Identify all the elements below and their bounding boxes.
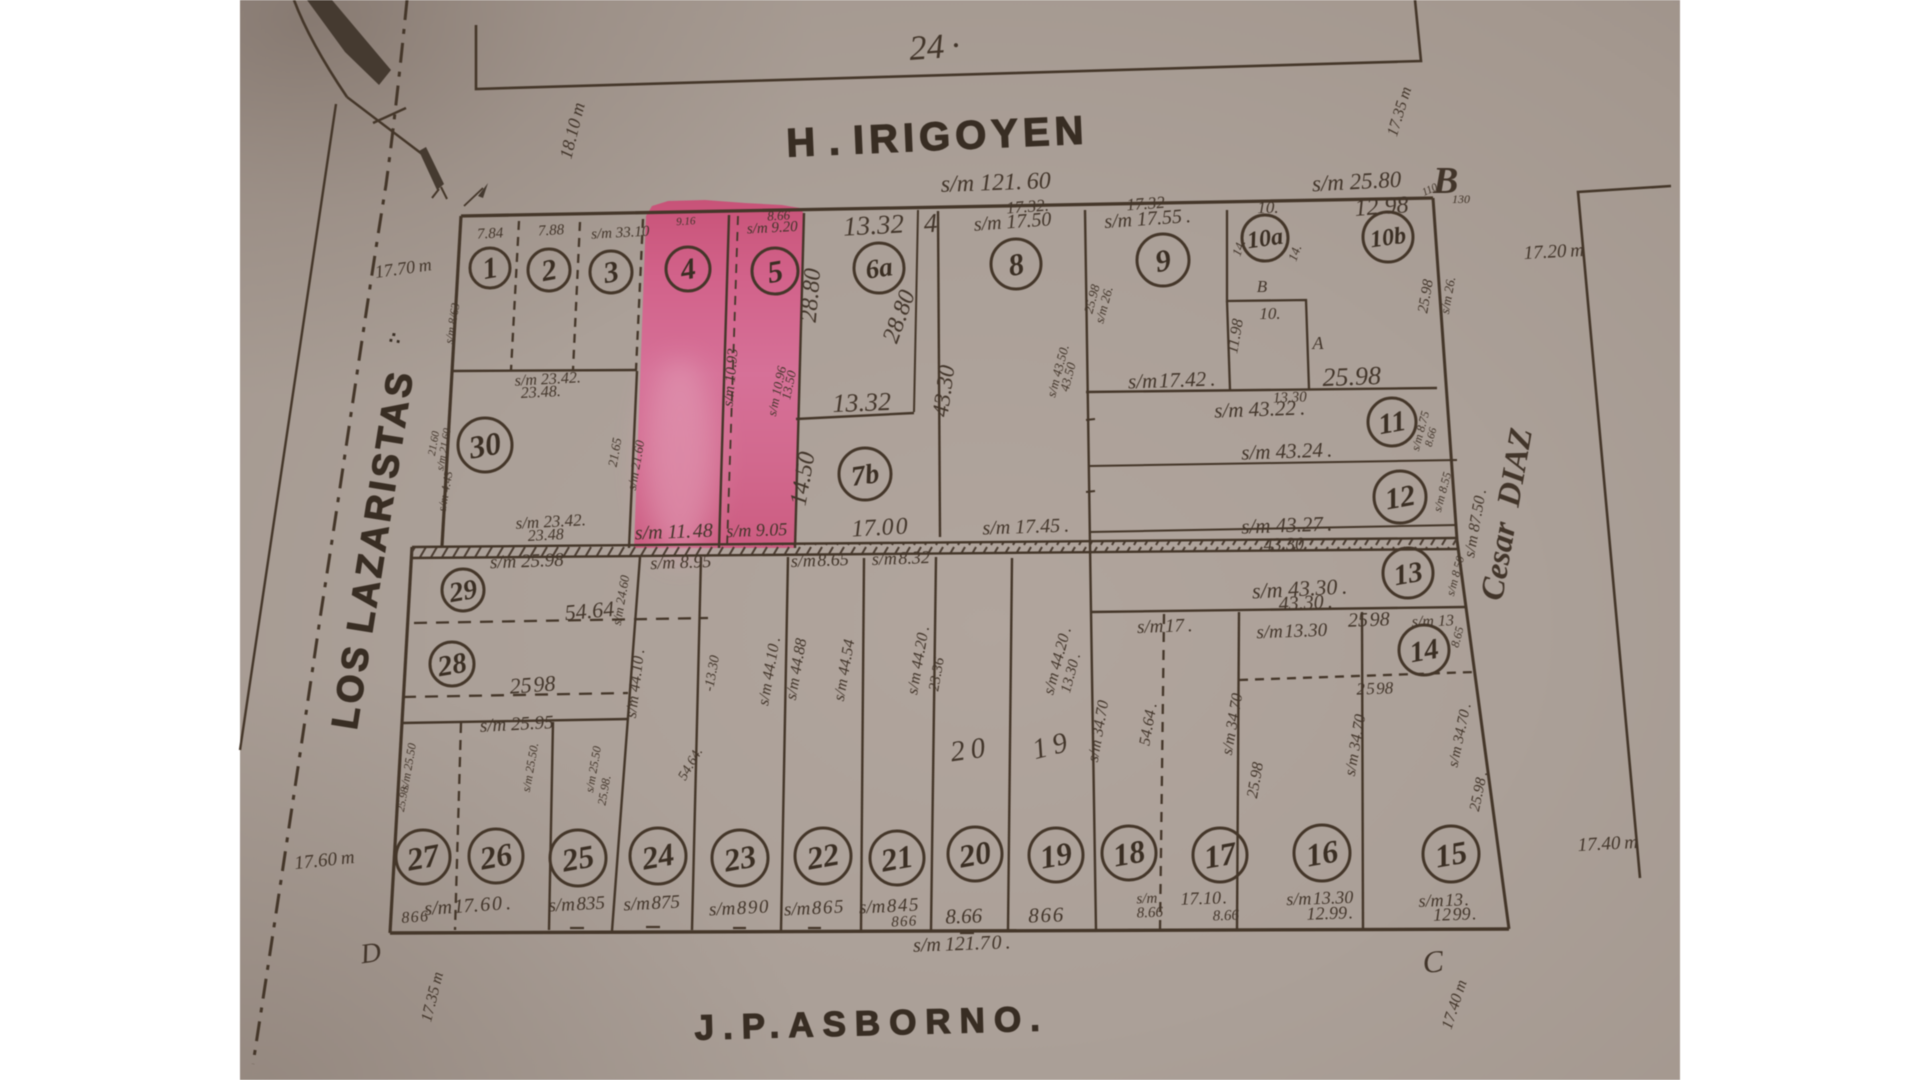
svg-text:13: 13 [1391, 556, 1425, 593]
svg-text:s/m 8 6 5: s/m 8 6 5 [783, 896, 844, 920]
svg-text:s/m 13.30: s/m 13.30 [1256, 620, 1328, 643]
svg-text:24 ·: 24 · [908, 26, 961, 68]
svg-text:8 6 6: 8 6 6 [1028, 902, 1064, 927]
svg-text:A: A [1312, 333, 1325, 353]
svg-text:8.66: 8.66 [945, 903, 983, 928]
svg-text:10b: 10b [1369, 223, 1408, 254]
svg-text:17.20 m: 17.20 m [1523, 240, 1584, 264]
svg-text:s/m 25.95: s/m 25.95 [479, 712, 554, 737]
svg-text:s/m 835: s/m 835 [548, 893, 606, 917]
svg-text:17.0 0: 17.0 0 [851, 514, 908, 543]
svg-text:23: 23 [720, 837, 759, 878]
svg-text:18: 18 [1110, 832, 1148, 873]
svg-text:24: 24 [638, 835, 677, 876]
svg-text:26: 26 [476, 835, 515, 876]
svg-text:s/m 33.10: s/m 33.10 [591, 224, 651, 243]
svg-text:43.30: 43.30 [1263, 533, 1304, 554]
svg-text:s/m 43.22 .: s/m 43.22 . [1214, 395, 1306, 422]
svg-text:22: 22 [803, 835, 842, 876]
svg-text:s/m 17.42 .: s/m 17.42 . [1128, 366, 1216, 393]
svg-text:s/m 875: s/m 875 [623, 892, 681, 916]
svg-text:30: 30 [465, 424, 504, 465]
svg-text:15: 15 [1432, 833, 1470, 874]
svg-text:10.: 10. [1257, 198, 1278, 217]
svg-text:25 98: 25 98 [1348, 608, 1390, 631]
svg-text:2 5 98: 2 5 98 [1356, 678, 1394, 698]
svg-text:12.98: 12.98 [1354, 192, 1410, 222]
svg-text:12.99 .: 12.99 . [1306, 902, 1353, 924]
svg-text:25 98: 25 98 [509, 670, 556, 698]
svg-text:s/m 17.45 .: s/m 17.45 . [982, 514, 1070, 539]
svg-text:s/m 9.20: s/m 9.20 [746, 219, 798, 238]
svg-text:s/m 43.24 .: s/m 43.24 . [1241, 437, 1333, 464]
svg-text:13.32: 13.32 [832, 387, 891, 418]
svg-text:25.98: 25.98 [1322, 361, 1381, 392]
svg-text:14: 14 [1407, 633, 1441, 670]
svg-text:10.: 10. [1259, 304, 1280, 323]
svg-text:23.48: 23.48 [527, 526, 564, 545]
svg-text:s/m 13: s/m 13 [1411, 612, 1454, 630]
svg-text:17.40 m: 17.40 m [1577, 832, 1638, 856]
svg-text:13.32: 13.32 [842, 208, 904, 241]
svg-text:28.80: 28.80 [796, 267, 827, 323]
svg-text:43.30 .: 43.30 . [1278, 591, 1333, 616]
svg-text:23.48.: 23.48. [520, 383, 561, 402]
svg-text:17.10 .: 17.10 . [1180, 887, 1227, 909]
svg-text:21: 21 [877, 837, 916, 878]
svg-text:8.66: 8.66 [1212, 908, 1239, 925]
svg-text:25: 25 [558, 837, 597, 878]
svg-text:s/m 25.98: s/m 25.98 [490, 550, 565, 574]
svg-text:12 99 .: 12 99 . [1433, 903, 1477, 925]
svg-text:12: 12 [1382, 479, 1417, 517]
svg-text:2 0: 2 0 [948, 732, 987, 769]
svg-text:29: 29 [446, 574, 480, 610]
svg-text:130: 130 [1452, 192, 1470, 206]
svg-text:s/m 17 .: s/m 17 . [1137, 615, 1193, 638]
svg-text:10a: 10a [1246, 224, 1285, 255]
svg-text:54.64: 54.64 [564, 596, 615, 625]
svg-text:28: 28 [434, 647, 470, 684]
svg-text:7.84: 7.84 [477, 225, 505, 242]
svg-text:s/m 8.65: s/m 8.65 [790, 549, 849, 571]
svg-text:s/m 8.95: s/m 8.95 [650, 551, 712, 573]
svg-text:16: 16 [1303, 832, 1341, 873]
svg-text:s/m 8.32: s/m 8.32 [871, 547, 930, 569]
svg-text:7b: 7b [849, 458, 881, 493]
svg-text:C: C [1421, 943, 1446, 980]
svg-text:B: B [1257, 277, 1268, 296]
svg-text:s/m 25.80: s/m 25.80 [1311, 167, 1402, 197]
svg-text:s/m 9.05: s/m 9.05 [726, 519, 788, 541]
svg-text:20: 20 [955, 833, 994, 874]
svg-text:D: D [358, 937, 383, 971]
svg-text:11: 11 [1376, 405, 1409, 441]
svg-text:7.88: 7.88 [538, 222, 566, 239]
svg-text:6a: 6a [864, 251, 895, 284]
svg-text:8.66: 8.66 [1136, 905, 1163, 922]
svg-text:s/m 121.7 0 .: s/m 121.7 0 . [913, 931, 1011, 956]
svg-text:19: 19 [1037, 834, 1075, 875]
svg-text:s/m 8 9 0: s/m 8 9 0 [708, 896, 769, 920]
svg-text:9.16: 9.16 [676, 215, 696, 228]
svg-text:4: 4 [923, 208, 938, 239]
svg-text:8 6 6: 8 6 6 [891, 913, 917, 930]
svg-text:s/m 11. 48: s/m 11. 48 [634, 520, 713, 545]
svg-text:s/m 121. 60: s/m 121. 60 [940, 168, 1051, 198]
